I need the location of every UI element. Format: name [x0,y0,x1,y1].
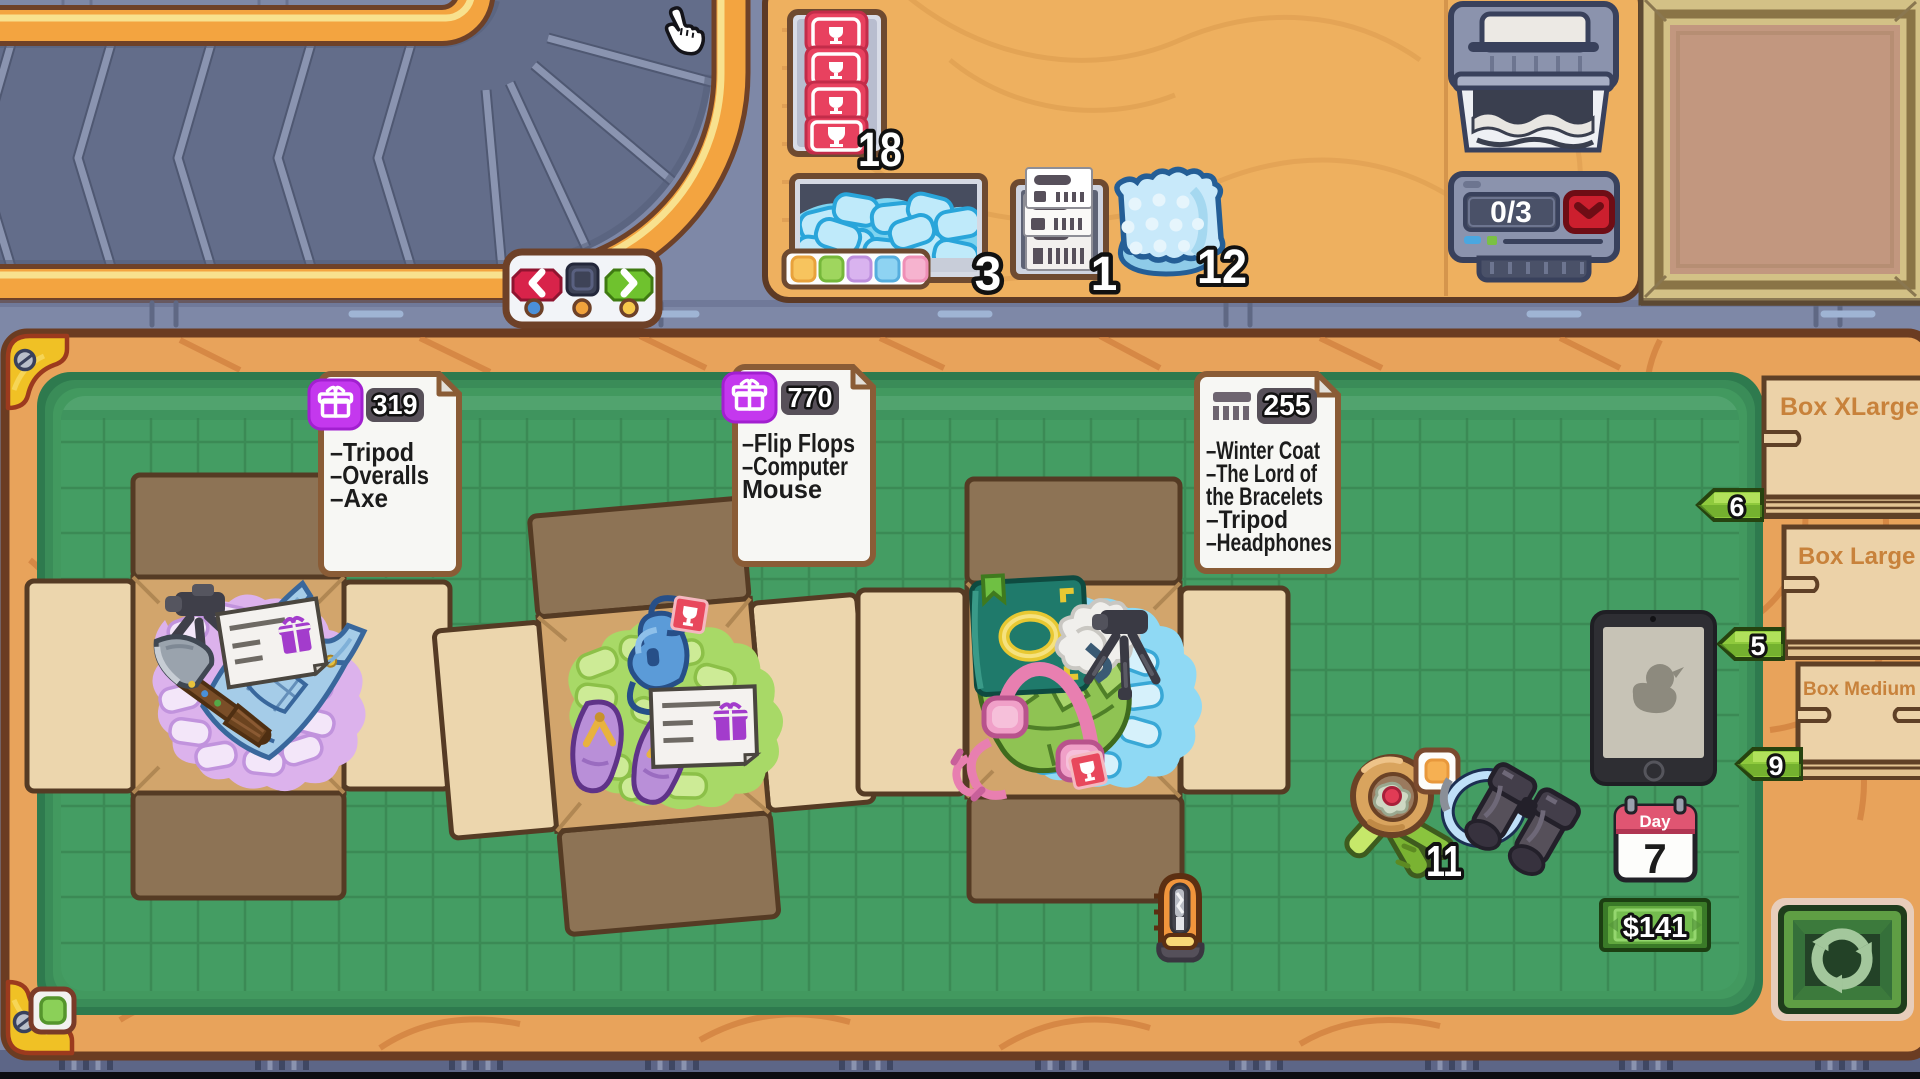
svg-text:3: 3 [975,248,1002,301]
svg-text:Day: Day [1639,812,1671,831]
svg-text:6: 6 [1729,492,1744,522]
svg-text:9: 9 [1768,751,1783,781]
svg-text:5: 5 [1750,631,1765,661]
svg-text:–Axe: –Axe [330,483,388,513]
svg-text:Box Large: Box Large [1798,543,1915,570]
svg-text:7: 7 [1643,835,1666,882]
svg-text:–Headphones: –Headphones [1206,529,1332,557]
svg-text:770: 770 [788,382,833,413]
svg-text:Box XLarge: Box XLarge [1780,393,1919,421]
svg-text:319: 319 [373,389,418,420]
svg-text:1: 1 [1091,248,1118,301]
svg-text:11: 11 [1426,837,1462,886]
svg-text:0/3: 0/3 [1490,196,1532,229]
svg-text:12: 12 [1197,241,1247,294]
svg-text:Box Medium: Box Medium [1803,679,1916,700]
svg-text:255: 255 [1264,390,1311,422]
svg-text:$141: $141 [1623,912,1688,944]
svg-text:Mouse: Mouse [742,474,822,504]
svg-text:18: 18 [858,124,902,177]
